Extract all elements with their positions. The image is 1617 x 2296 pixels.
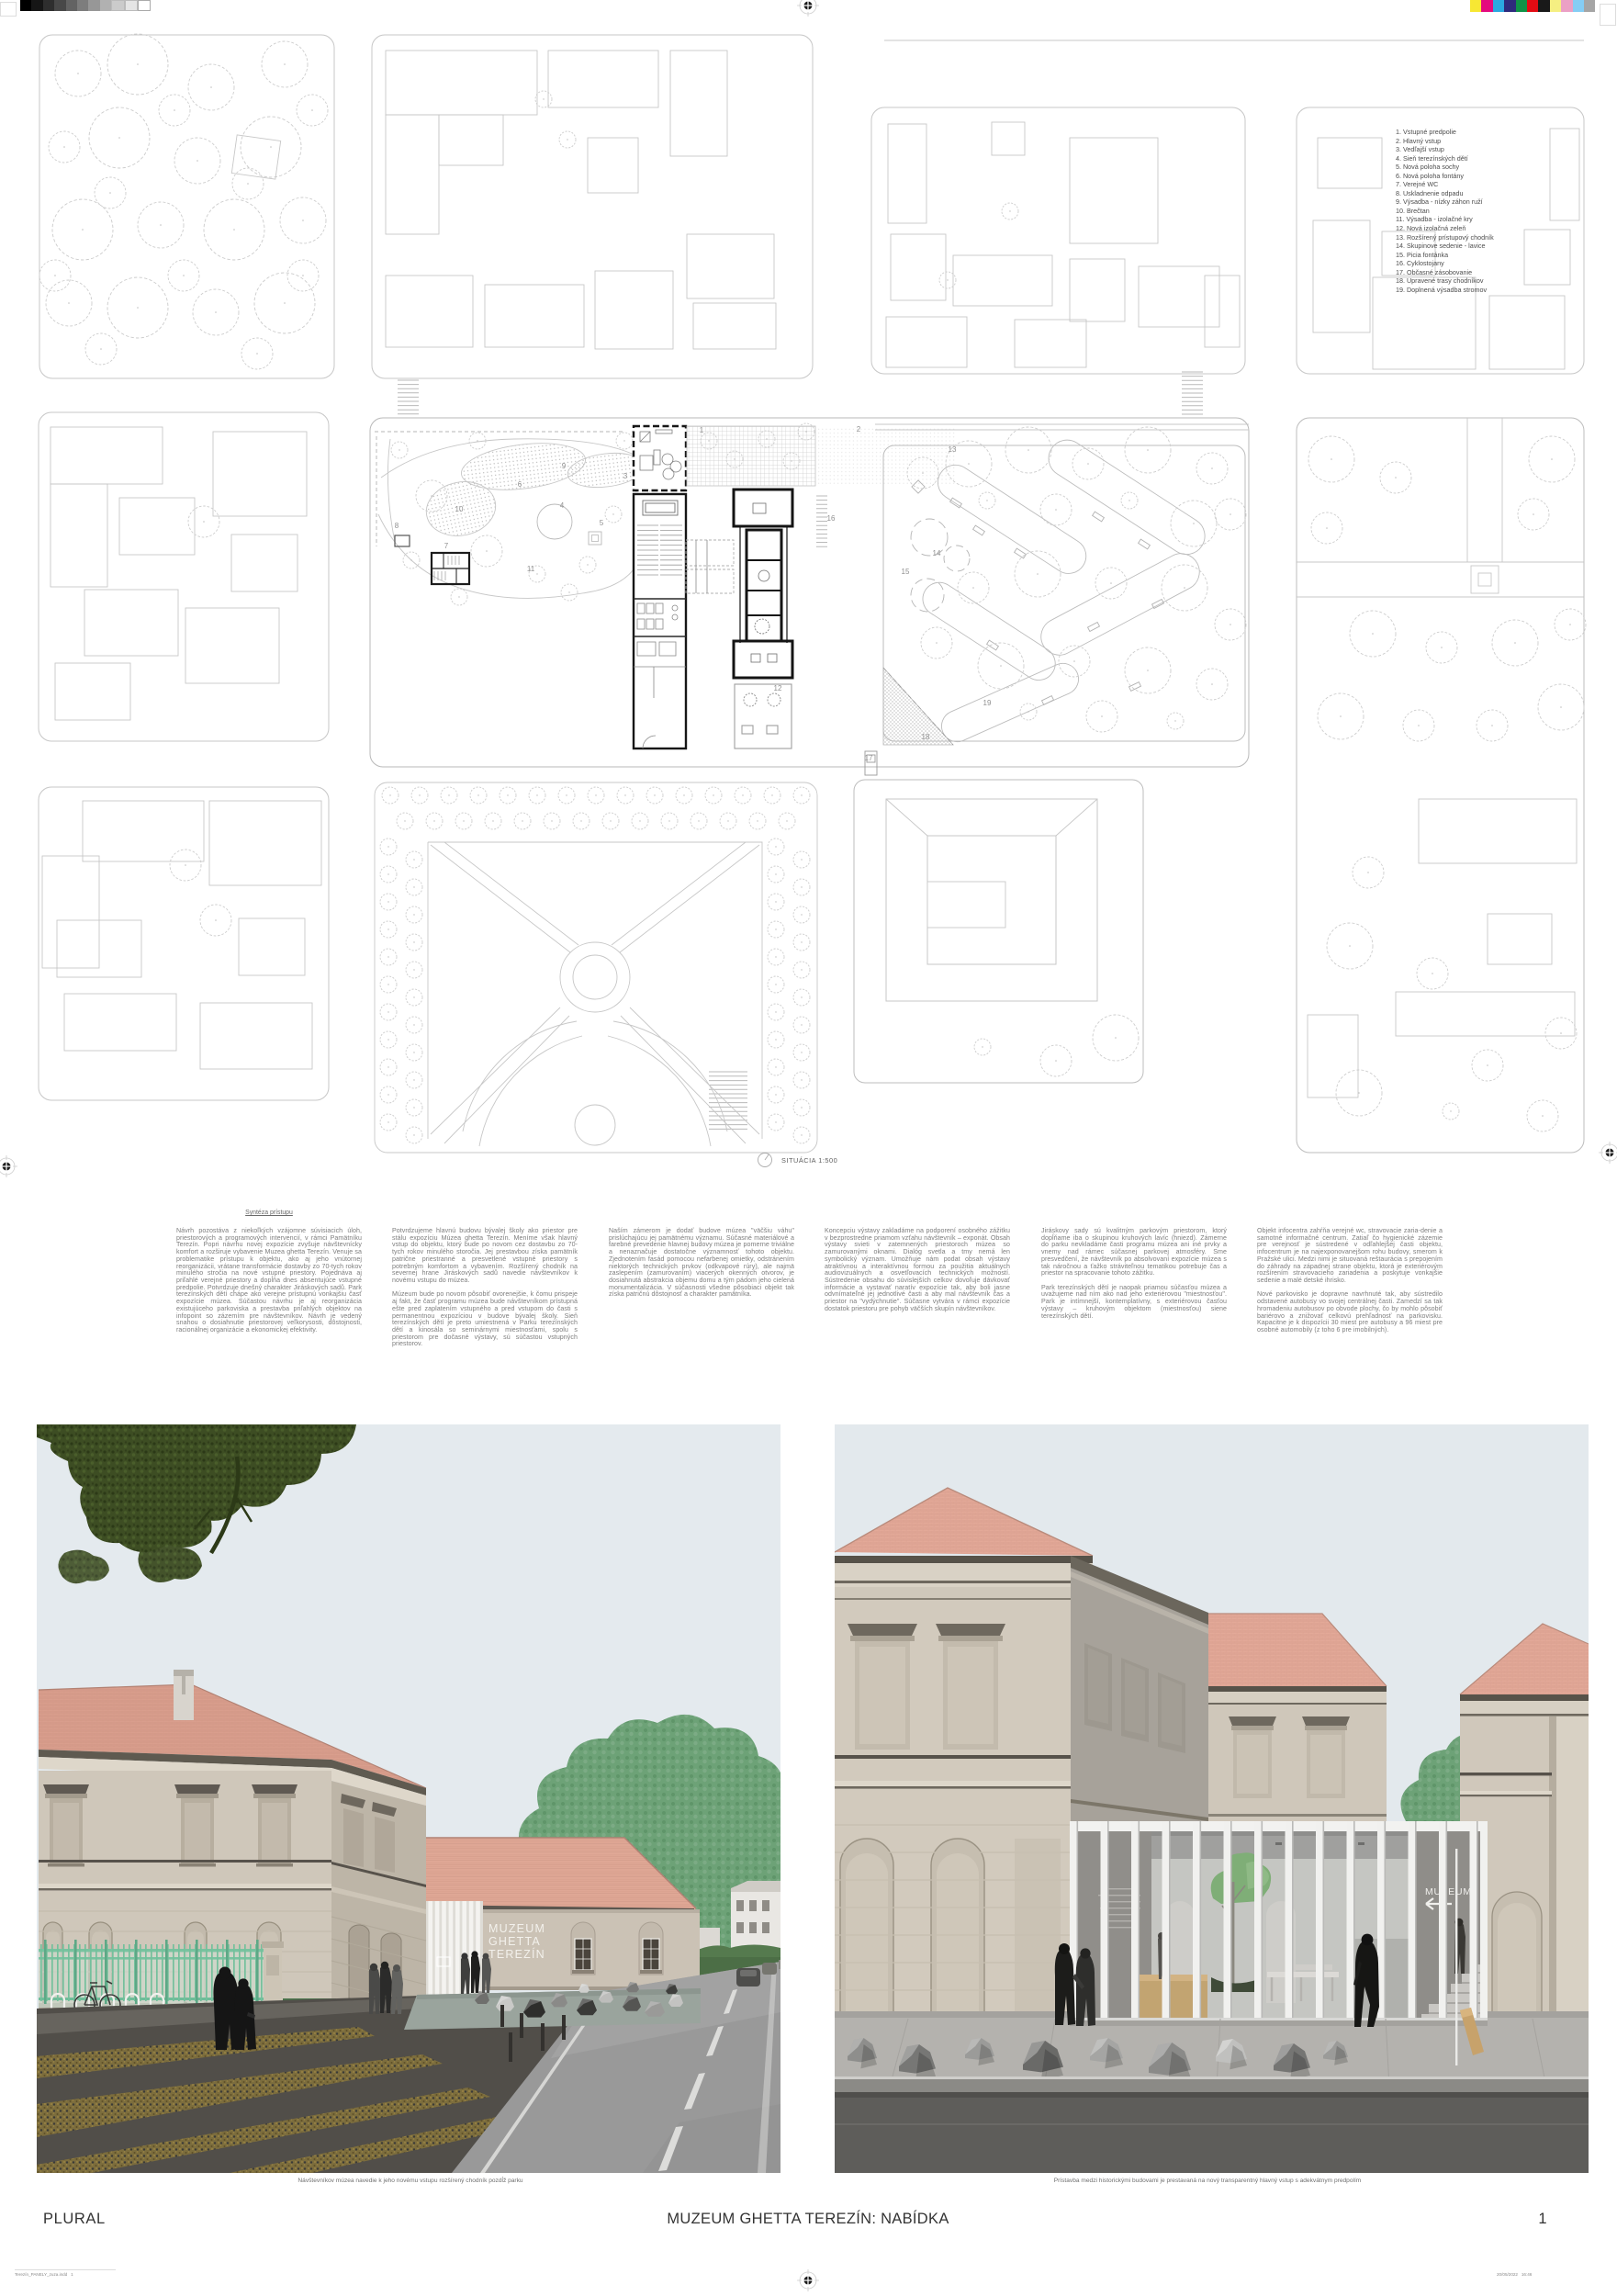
svg-text:5: 5 bbox=[600, 519, 604, 527]
svg-text:GHETTA: GHETTA bbox=[488, 1935, 541, 1948]
svg-text:15: 15 bbox=[902, 568, 910, 576]
svg-text:MUZEUM: MUZEUM bbox=[488, 1922, 545, 1935]
svg-text:4: 4 bbox=[560, 501, 565, 510]
svg-text:17: 17 bbox=[865, 754, 873, 762]
svg-text:SITUÁCIA 1:500: SITUÁCIA 1:500 bbox=[781, 1156, 837, 1165]
svg-text:14: 14 bbox=[933, 549, 941, 557]
svg-text:13: 13 bbox=[949, 445, 957, 454]
svg-text:11: 11 bbox=[527, 565, 535, 573]
svg-text:19: 19 bbox=[983, 699, 992, 707]
svg-text:3: 3 bbox=[623, 472, 628, 480]
svg-text:MUZEUM: MUZEUM bbox=[1425, 1886, 1472, 1897]
svg-text:1: 1 bbox=[700, 426, 704, 434]
svg-text:7: 7 bbox=[444, 542, 449, 550]
svg-text:10: 10 bbox=[455, 505, 464, 513]
svg-text:8: 8 bbox=[395, 522, 399, 530]
svg-text:2: 2 bbox=[857, 425, 861, 433]
svg-text:12: 12 bbox=[774, 684, 782, 692]
svg-text:6: 6 bbox=[518, 480, 522, 489]
svg-text:18: 18 bbox=[922, 733, 930, 741]
svg-text:9: 9 bbox=[562, 462, 567, 470]
svg-text:TEREZÍN: TEREZÍN bbox=[488, 1947, 545, 1961]
svg-text:16: 16 bbox=[827, 514, 836, 523]
